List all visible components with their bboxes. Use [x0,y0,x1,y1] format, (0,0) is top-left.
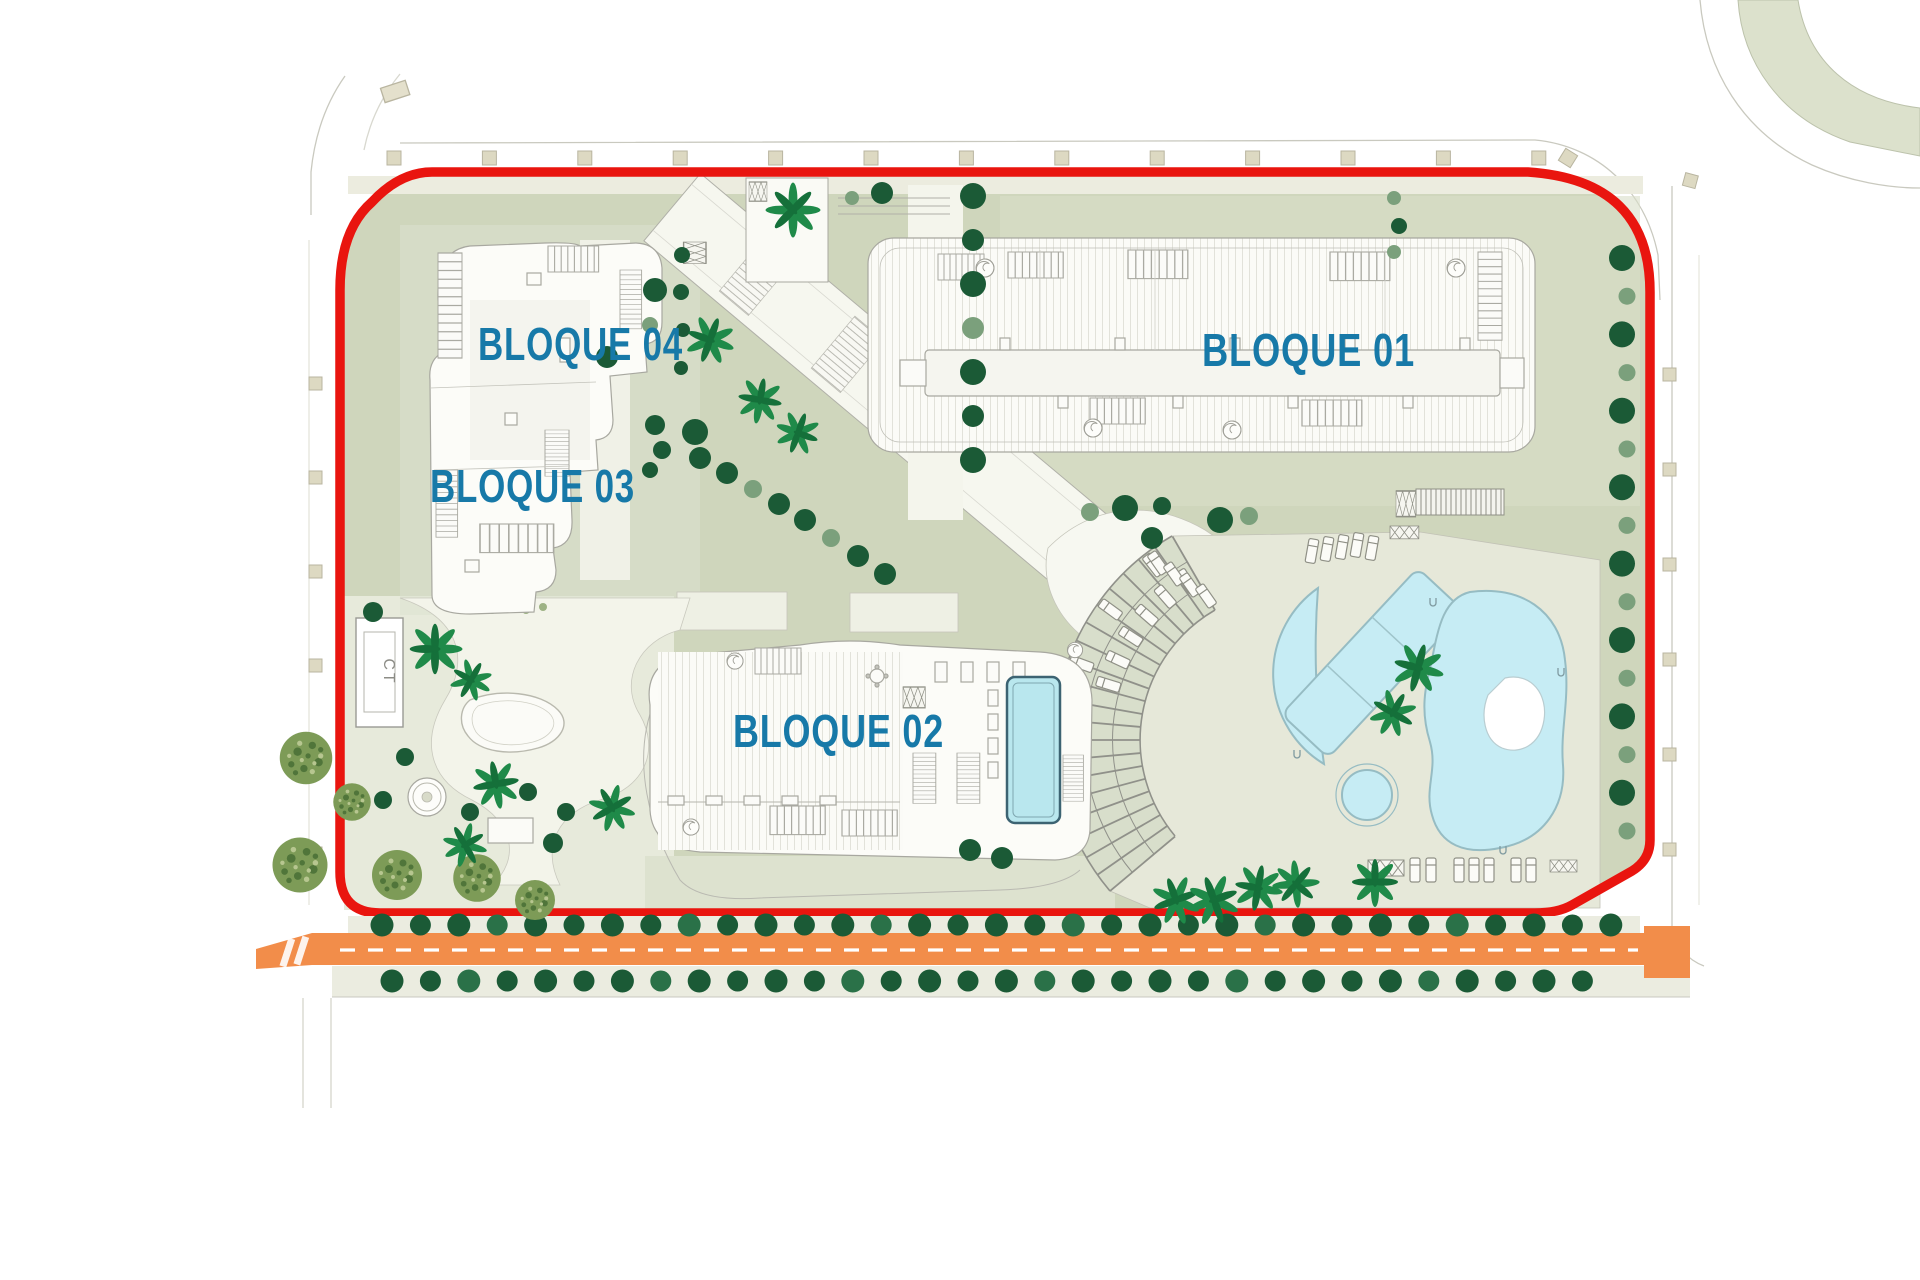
site-plan-page: CT [0,0,1920,1280]
garden-planter [488,818,533,843]
street-lamp-square-corner [1558,148,1577,167]
label-bloque-01: BLOQUE 01 [1202,324,1415,376]
rooftop-pool [1007,677,1060,823]
site-plan: CT [0,0,1920,1280]
transformer-label: CT [380,658,397,685]
inner-top-walk [348,176,1643,194]
context-green-verge [1738,0,1920,156]
transformer-ct: CT [356,618,403,727]
plate-above-b02-right [850,593,958,632]
label-bloque-04: BLOQUE 04 [478,318,683,370]
street-lamp-square-right-top [1682,173,1698,189]
label-bloque-02: BLOQUE 02 [733,705,944,757]
b02-south-ground [645,856,1115,910]
label-bloque-03: BLOQUE 03 [430,460,635,512]
spa-pool [1342,770,1392,820]
plate-above-b02-left [677,592,787,630]
